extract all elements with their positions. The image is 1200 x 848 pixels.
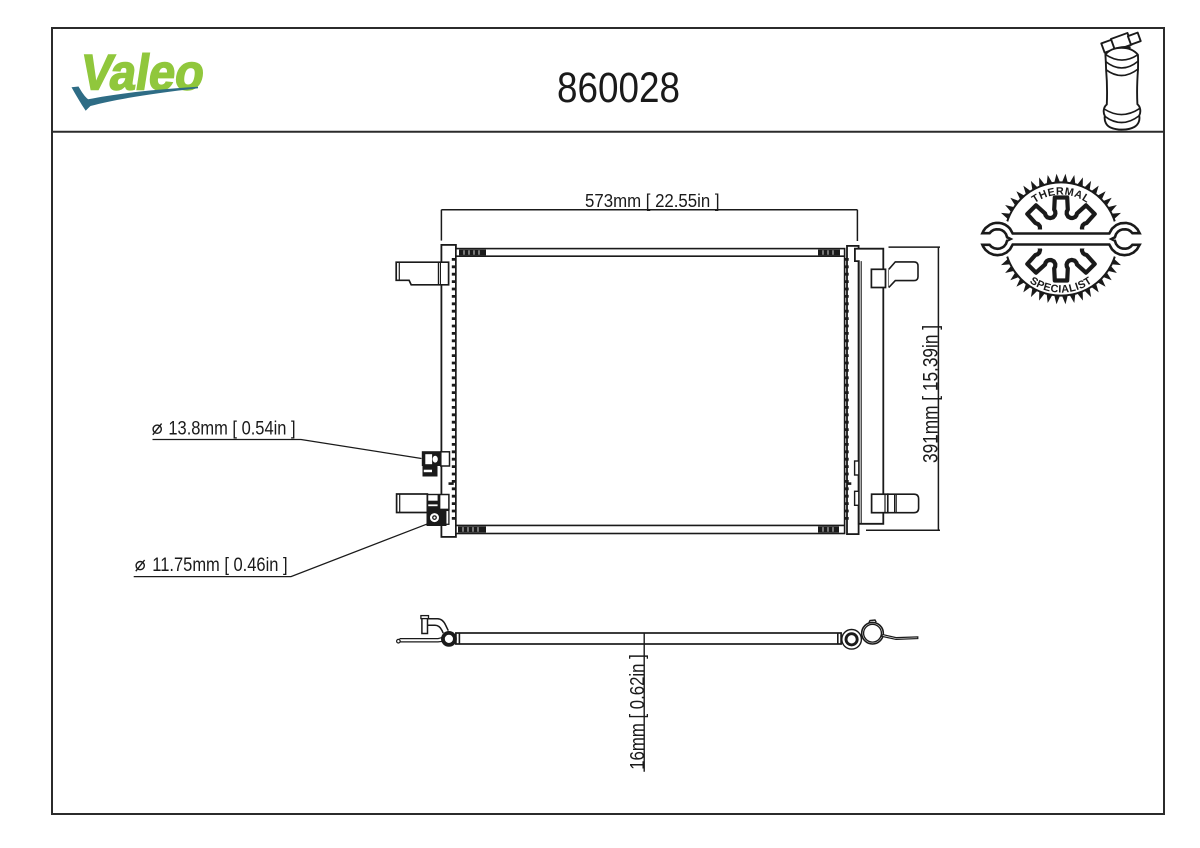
svg-text:391mm [ 15.39in ]: 391mm [ 15.39in ]: [919, 325, 942, 463]
svg-text:573mm [ 22.55in ]: 573mm [ 22.55in ]: [585, 191, 720, 211]
svg-text:860028: 860028: [557, 65, 680, 112]
svg-text:13.8mm [ 0.54in ]: 13.8mm [ 0.54in ]: [168, 418, 295, 440]
svg-text:16mm [ 0.62in ]: 16mm [ 0.62in ]: [627, 654, 649, 770]
svg-text:11.75mm [ 0.46in ]: 11.75mm [ 0.46in ]: [152, 554, 287, 576]
